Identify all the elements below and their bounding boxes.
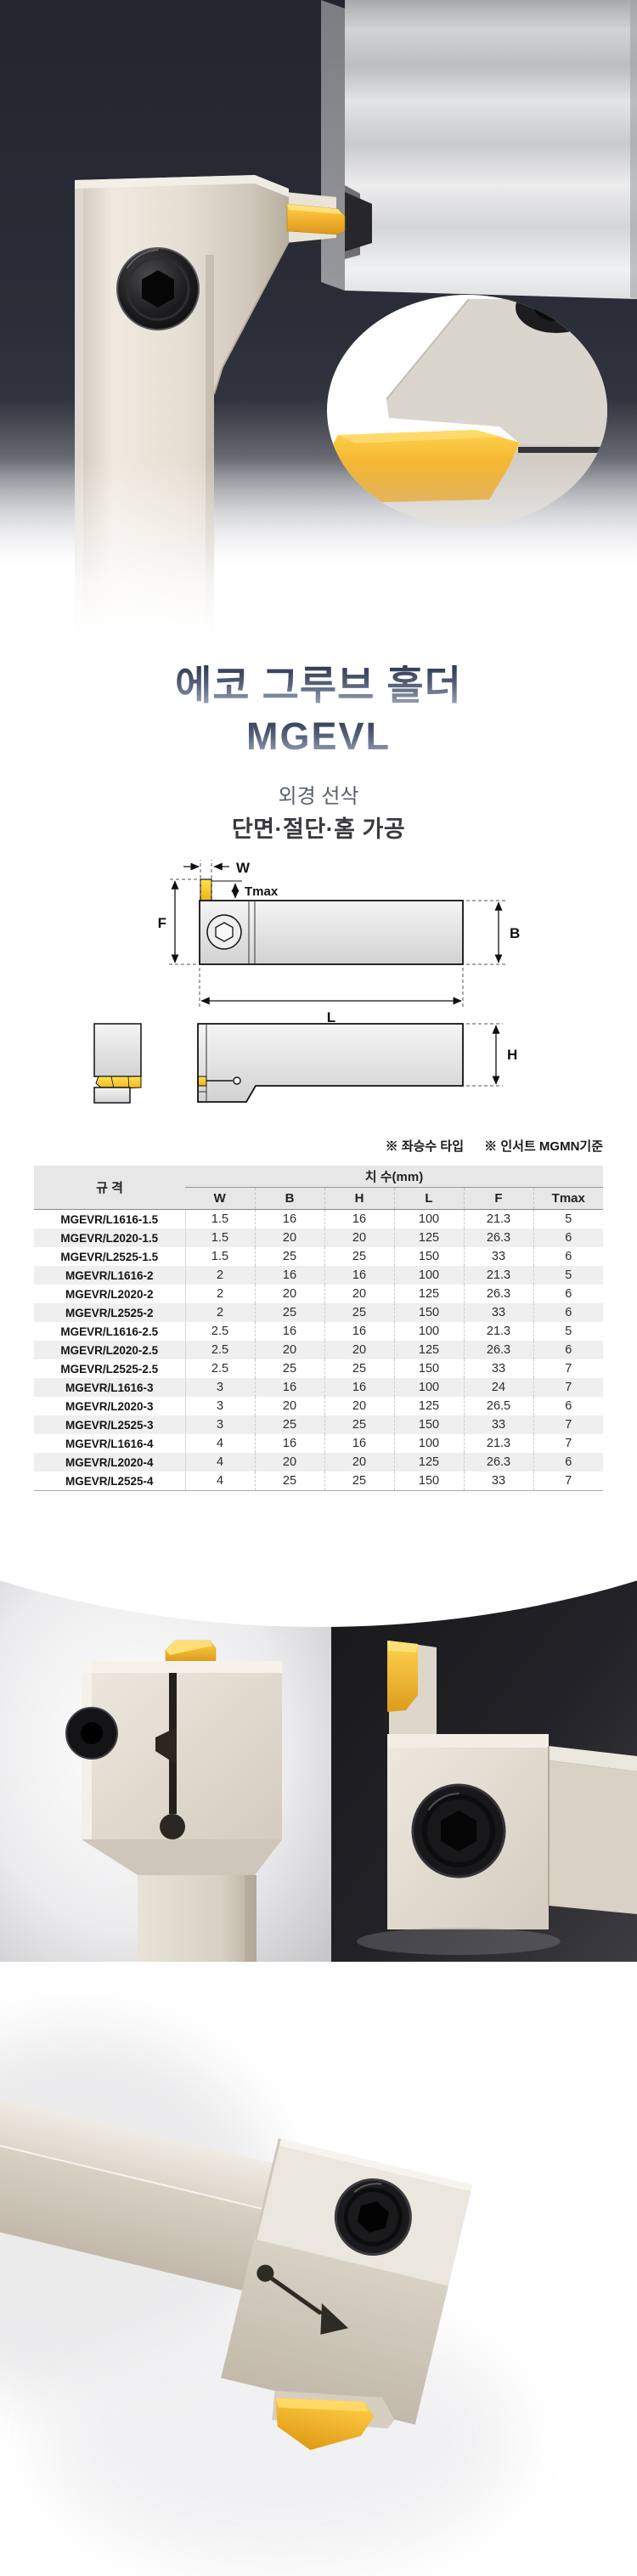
value-cell: 26.5 bbox=[464, 1397, 533, 1415]
value-cell: 100 bbox=[394, 1210, 464, 1229]
value-cell: 20 bbox=[324, 1453, 394, 1472]
value-cell: 7 bbox=[533, 1378, 603, 1397]
product-page: 에코 그루브 홀더 MGEVL 외경 선삭 단면·절단·홈 가공 bbox=[0, 0, 637, 2576]
value-cell: 1.5 bbox=[185, 1247, 255, 1266]
value-cell: 25 bbox=[324, 1415, 394, 1434]
value-cell: 26.3 bbox=[464, 1229, 533, 1247]
value-cell: 150 bbox=[394, 1415, 464, 1434]
column-header-f: F bbox=[464, 1188, 533, 1210]
value-cell: 33 bbox=[464, 1303, 533, 1322]
bottom-photo bbox=[0, 1962, 637, 2576]
value-cell: 7 bbox=[533, 1472, 603, 1491]
table-row: MGEVR/L1616-331616100247 bbox=[34, 1378, 603, 1397]
product-title-model: MGEVL bbox=[0, 717, 637, 755]
value-cell: 5 bbox=[533, 1322, 603, 1341]
diagram-front-view bbox=[94, 1024, 141, 1103]
value-cell: 16 bbox=[324, 1322, 394, 1341]
value-cell: 100 bbox=[394, 1378, 464, 1397]
spec-cell: MGEVR/L2525-4 bbox=[34, 1472, 185, 1491]
product-subtitle-machining: 외경 선삭 bbox=[0, 787, 637, 807]
value-cell: 6 bbox=[533, 1453, 603, 1472]
value-cell: 33 bbox=[464, 1247, 533, 1266]
value-cell: 6 bbox=[533, 1303, 603, 1322]
value-cell: 21.3 bbox=[464, 1434, 533, 1453]
hero-photo-illustration bbox=[0, 0, 637, 688]
spec-cell: MGEVR/L2525-2 bbox=[34, 1303, 185, 1322]
value-cell: 21.3 bbox=[464, 1322, 533, 1341]
table-row: MGEVR/L2525-442525150337 bbox=[34, 1472, 603, 1491]
value-cell: 25 bbox=[255, 1415, 324, 1434]
detail-photo-front bbox=[0, 1568, 331, 1962]
value-cell: 16 bbox=[324, 1266, 394, 1285]
table-row: MGEVR/L2525-332525150337 bbox=[34, 1415, 603, 1434]
spec-cell: MGEVR/L1616-1.5 bbox=[34, 1210, 185, 1229]
value-cell: 125 bbox=[394, 1397, 464, 1415]
spec-cell: MGEVR/L2020-4 bbox=[34, 1453, 185, 1472]
value-cell: 7 bbox=[533, 1359, 603, 1378]
spec-cell: MGEVR/L1616-3 bbox=[34, 1378, 185, 1397]
value-cell: 20 bbox=[255, 1453, 324, 1472]
column-header-h: H bbox=[324, 1188, 394, 1210]
dim-label-tmax: Tmax bbox=[245, 884, 279, 899]
value-cell: 20 bbox=[324, 1397, 394, 1415]
table-row: MGEVR/L2525-1.51.52525150336 bbox=[34, 1247, 603, 1266]
diagram-top-view: W Tmax F B L bbox=[158, 860, 521, 1025]
value-cell: 25 bbox=[324, 1303, 394, 1322]
value-cell: 1.5 bbox=[185, 1229, 255, 1247]
value-cell: 4 bbox=[185, 1434, 255, 1453]
value-cell: 6 bbox=[533, 1247, 603, 1266]
value-cell: 20 bbox=[255, 1229, 324, 1247]
table-row: MGEVR/L2020-2.52.5202012526.36 bbox=[34, 1341, 603, 1359]
spec-column-header: 규 격 bbox=[34, 1166, 185, 1210]
spec-cell: MGEVR/L2525-1.5 bbox=[34, 1247, 185, 1266]
product-subtitle-operations: 단면·절단·홈 가공 bbox=[0, 818, 637, 841]
product-title-korean: 에코 그루브 홀더 bbox=[0, 665, 637, 705]
value-cell: 3 bbox=[185, 1397, 255, 1415]
value-cell: 26.3 bbox=[464, 1341, 533, 1359]
value-cell: 25 bbox=[255, 1472, 324, 1491]
note-hand-type: ※ 좌승수 타입 bbox=[386, 1139, 464, 1154]
value-cell: 21.3 bbox=[464, 1210, 533, 1229]
value-cell: 7 bbox=[533, 1434, 603, 1453]
dimension-diagram-svg: W Tmax F B L bbox=[0, 850, 637, 1130]
value-cell: 16 bbox=[255, 1434, 324, 1453]
value-cell: 2.5 bbox=[185, 1359, 255, 1378]
dim-label-f: F bbox=[158, 915, 166, 931]
value-cell: 16 bbox=[324, 1434, 394, 1453]
note-insert-standard: ※ 인서트 MGMN기준 bbox=[484, 1139, 603, 1154]
value-cell: 6 bbox=[533, 1397, 603, 1415]
spec-table: 규 격 치 수(mm) W B H L F Tmax MGEVR/L1616-1… bbox=[34, 1166, 603, 1491]
detail-photos bbox=[0, 1568, 637, 1962]
detail-photo-angle bbox=[331, 1568, 637, 1962]
value-cell: 20 bbox=[324, 1341, 394, 1359]
value-cell: 125 bbox=[394, 1285, 464, 1303]
hero-clamp-screw bbox=[117, 248, 199, 330]
value-cell: 20 bbox=[255, 1285, 324, 1303]
diagram-insert-side bbox=[199, 1076, 207, 1086]
value-cell: 21.3 bbox=[464, 1266, 533, 1285]
value-cell: 6 bbox=[533, 1285, 603, 1303]
dim-label-b: B bbox=[510, 925, 520, 941]
value-cell: 5 bbox=[533, 1266, 603, 1285]
value-cell: 24 bbox=[464, 1378, 533, 1397]
table-row: MGEVR/L2020-1.51.5202012526.36 bbox=[34, 1229, 603, 1247]
diagram-side-view: H bbox=[198, 1024, 517, 1102]
value-cell: 2 bbox=[185, 1303, 255, 1322]
value-cell: 3 bbox=[185, 1378, 255, 1397]
bottom-photo-illustration bbox=[0, 1962, 637, 2576]
table-row: MGEVR/L1616-44161610021.37 bbox=[34, 1434, 603, 1453]
value-cell: 33 bbox=[464, 1415, 533, 1434]
value-cell: 4 bbox=[185, 1472, 255, 1491]
table-notes: ※ 좌승수 타입 ※ 인서트 MGMN기준 bbox=[0, 1139, 603, 1155]
value-cell: 16 bbox=[255, 1322, 324, 1341]
value-cell: 33 bbox=[464, 1359, 533, 1378]
table-row: MGEVR/L1616-1.51.5161610021.35 bbox=[34, 1210, 603, 1229]
value-cell: 5 bbox=[533, 1210, 603, 1229]
value-cell: 7 bbox=[533, 1415, 603, 1434]
value-cell: 100 bbox=[394, 1434, 464, 1453]
table-row: MGEVR/L2020-22202012526.36 bbox=[34, 1285, 603, 1303]
value-cell: 16 bbox=[255, 1266, 324, 1285]
spec-cell: MGEVR/L2525-3 bbox=[34, 1415, 185, 1434]
column-header-b: B bbox=[255, 1188, 324, 1210]
table-row: MGEVR/L2020-44202012526.36 bbox=[34, 1453, 603, 1472]
table-row: MGEVR/L2525-222525150336 bbox=[34, 1303, 603, 1322]
spec-cell: MGEVR/L2020-2.5 bbox=[34, 1341, 185, 1359]
column-header-w: W bbox=[185, 1188, 255, 1210]
value-cell: 2 bbox=[185, 1285, 255, 1303]
spec-cell: MGEVR/L2020-1.5 bbox=[34, 1229, 185, 1247]
value-cell: 25 bbox=[255, 1303, 324, 1322]
spec-cell: MGEVR/L1616-4 bbox=[34, 1434, 185, 1453]
value-cell: 4 bbox=[185, 1453, 255, 1472]
value-cell: 20 bbox=[324, 1229, 394, 1247]
value-cell: 16 bbox=[324, 1378, 394, 1397]
steel-workpiece-block bbox=[321, 0, 637, 299]
dimension-diagram: W Tmax F B L bbox=[0, 850, 637, 1130]
dimension-header: 치 수(mm) bbox=[185, 1166, 603, 1188]
value-cell: 150 bbox=[394, 1247, 464, 1266]
value-cell: 3 bbox=[185, 1415, 255, 1434]
dim-label-w: W bbox=[236, 860, 251, 876]
detail-clamp-screw bbox=[413, 1785, 505, 1877]
value-cell: 1.5 bbox=[185, 1210, 255, 1229]
spec-cell: MGEVR/L2020-2 bbox=[34, 1285, 185, 1303]
value-cell: 125 bbox=[394, 1229, 464, 1247]
spec-table-body: MGEVR/L1616-1.51.5161610021.35MGEVR/L202… bbox=[34, 1210, 603, 1491]
value-cell: 125 bbox=[394, 1453, 464, 1472]
value-cell: 150 bbox=[394, 1472, 464, 1491]
value-cell: 26.3 bbox=[464, 1285, 533, 1303]
value-cell: 125 bbox=[394, 1341, 464, 1359]
spec-cell: MGEVR/L2020-3 bbox=[34, 1397, 185, 1415]
value-cell: 20 bbox=[324, 1285, 394, 1303]
detail-photos-illustration bbox=[0, 1568, 637, 1962]
column-header-tmax: Tmax bbox=[533, 1188, 603, 1210]
value-cell: 20 bbox=[255, 1397, 324, 1415]
value-cell: 6 bbox=[533, 1229, 603, 1247]
value-cell: 2 bbox=[185, 1266, 255, 1285]
column-header-l: L bbox=[394, 1188, 464, 1210]
spec-cell: MGEVR/L1616-2 bbox=[34, 1266, 185, 1285]
value-cell: 6 bbox=[533, 1341, 603, 1359]
value-cell: 100 bbox=[394, 1322, 464, 1341]
table-row: MGEVR/L2020-33202012526.56 bbox=[34, 1397, 603, 1415]
value-cell: 25 bbox=[324, 1472, 394, 1491]
value-cell: 16 bbox=[255, 1378, 324, 1397]
value-cell: 25 bbox=[324, 1359, 394, 1378]
spec-cell: MGEVR/L2525-2.5 bbox=[34, 1359, 185, 1378]
value-cell: 150 bbox=[394, 1359, 464, 1378]
value-cell: 2.5 bbox=[185, 1341, 255, 1359]
value-cell: 150 bbox=[394, 1303, 464, 1322]
value-cell: 25 bbox=[324, 1247, 394, 1266]
hero-photo bbox=[0, 0, 637, 688]
table-header-group-row: 규 격 치 수(mm) bbox=[34, 1166, 603, 1188]
diagram-insert-top bbox=[200, 879, 211, 901]
spec-cell: MGEVR/L1616-2.5 bbox=[34, 1322, 185, 1341]
table-row: MGEVR/L1616-22161610021.35 bbox=[34, 1266, 603, 1285]
value-cell: 100 bbox=[394, 1266, 464, 1285]
value-cell: 2.5 bbox=[185, 1322, 255, 1341]
value-cell: 25 bbox=[255, 1247, 324, 1266]
value-cell: 16 bbox=[324, 1210, 394, 1229]
value-cell: 20 bbox=[255, 1341, 324, 1359]
value-cell: 33 bbox=[464, 1472, 533, 1491]
value-cell: 25 bbox=[255, 1359, 324, 1378]
dim-label-h: H bbox=[507, 1047, 517, 1063]
table-row: MGEVR/L2525-2.52.52525150337 bbox=[34, 1359, 603, 1378]
value-cell: 16 bbox=[255, 1210, 324, 1229]
table-row: MGEVR/L1616-2.52.5161610021.35 bbox=[34, 1322, 603, 1341]
value-cell: 26.3 bbox=[464, 1453, 533, 1472]
